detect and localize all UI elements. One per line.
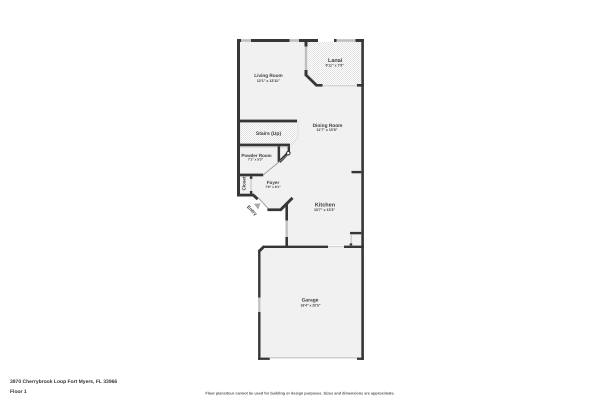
svg-text:7'8" x 8'1": 7'8" x 8'1" [265,185,281,189]
svg-text:Living Room: Living Room [254,73,282,78]
svg-text:13'7" x 13'3": 13'7" x 13'3" [314,208,335,212]
svg-text:12'1" x 13'11": 12'1" x 13'11" [257,79,280,83]
svg-text:Floor plans/tour cannot be use: Floor plans/tour cannot be used for buil… [205,391,394,395]
svg-text:Stairs (Up): Stairs (Up) [256,131,282,137]
svg-text:Floor 1: Floor 1 [10,389,27,395]
svg-text:3970 Cherrybrook Loop Fort Mye: 3970 Cherrybrook Loop Fort Myers, FL 339… [10,379,117,385]
svg-text:9'11" x 7'9": 9'11" x 7'9" [325,63,344,67]
svg-text:18'4" x 20'5": 18'4" x 20'5" [301,303,321,307]
svg-text:7'1" x 5'3": 7'1" x 5'3" [248,158,264,162]
svg-text:Closet: Closet [241,176,246,191]
svg-text:11'7" x 15'8": 11'7" x 15'8" [317,128,338,132]
